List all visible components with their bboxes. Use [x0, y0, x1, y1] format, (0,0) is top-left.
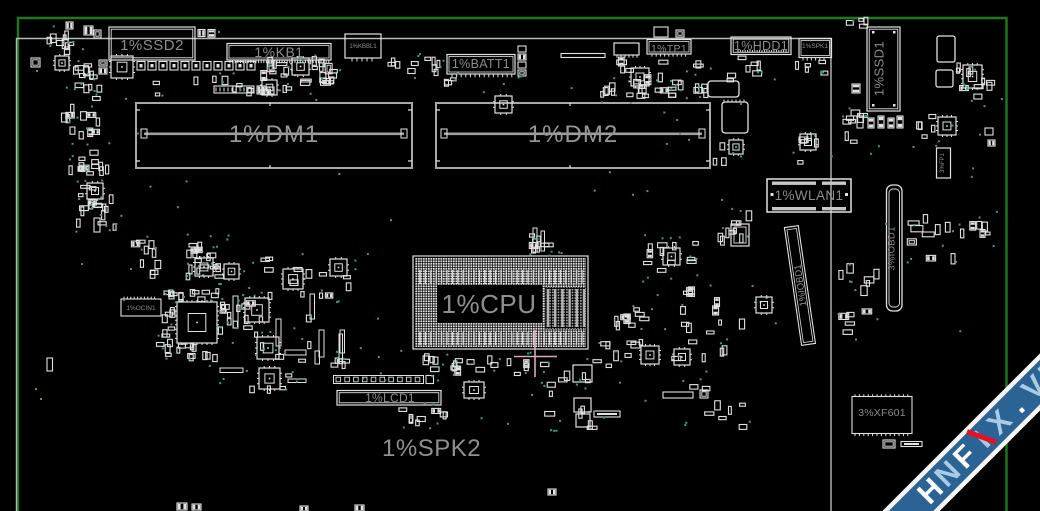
- svg-text:3%XF601: 3%XF601: [858, 407, 906, 419]
- svg-text:1%SSD2: 1%SSD2: [120, 37, 184, 54]
- svg-text:3%IOBD1: 3%IOBD1: [887, 226, 898, 270]
- svg-text:1%SPK1: 1%SPK1: [802, 43, 828, 50]
- svg-text:1%DM1: 1%DM1: [229, 121, 319, 148]
- svg-text:1%HDD1: 1%HDD1: [734, 39, 788, 53]
- svg-text:1%LCD1: 1%LCD1: [365, 391, 415, 405]
- svg-text:1%KBBL1: 1%KBBL1: [349, 44, 377, 50]
- svg-text:1%OCIN1: 1%OCIN1: [126, 305, 156, 312]
- svg-text:1%WLAN1: 1%WLAN1: [775, 188, 844, 203]
- svg-text:1%SSD1: 1%SSD1: [872, 41, 887, 96]
- svg-text:1%SPK2: 1%SPK2: [382, 435, 481, 462]
- svg-text:1%CPU: 1%CPU: [442, 289, 537, 319]
- svg-text:1%DM2: 1%DM2: [528, 121, 618, 148]
- svg-text:1%BATT1: 1%BATT1: [452, 57, 510, 71]
- svg-text:3%FP1: 3%FP1: [940, 153, 946, 173]
- svg-text:1%TP1: 1%TP1: [651, 43, 687, 55]
